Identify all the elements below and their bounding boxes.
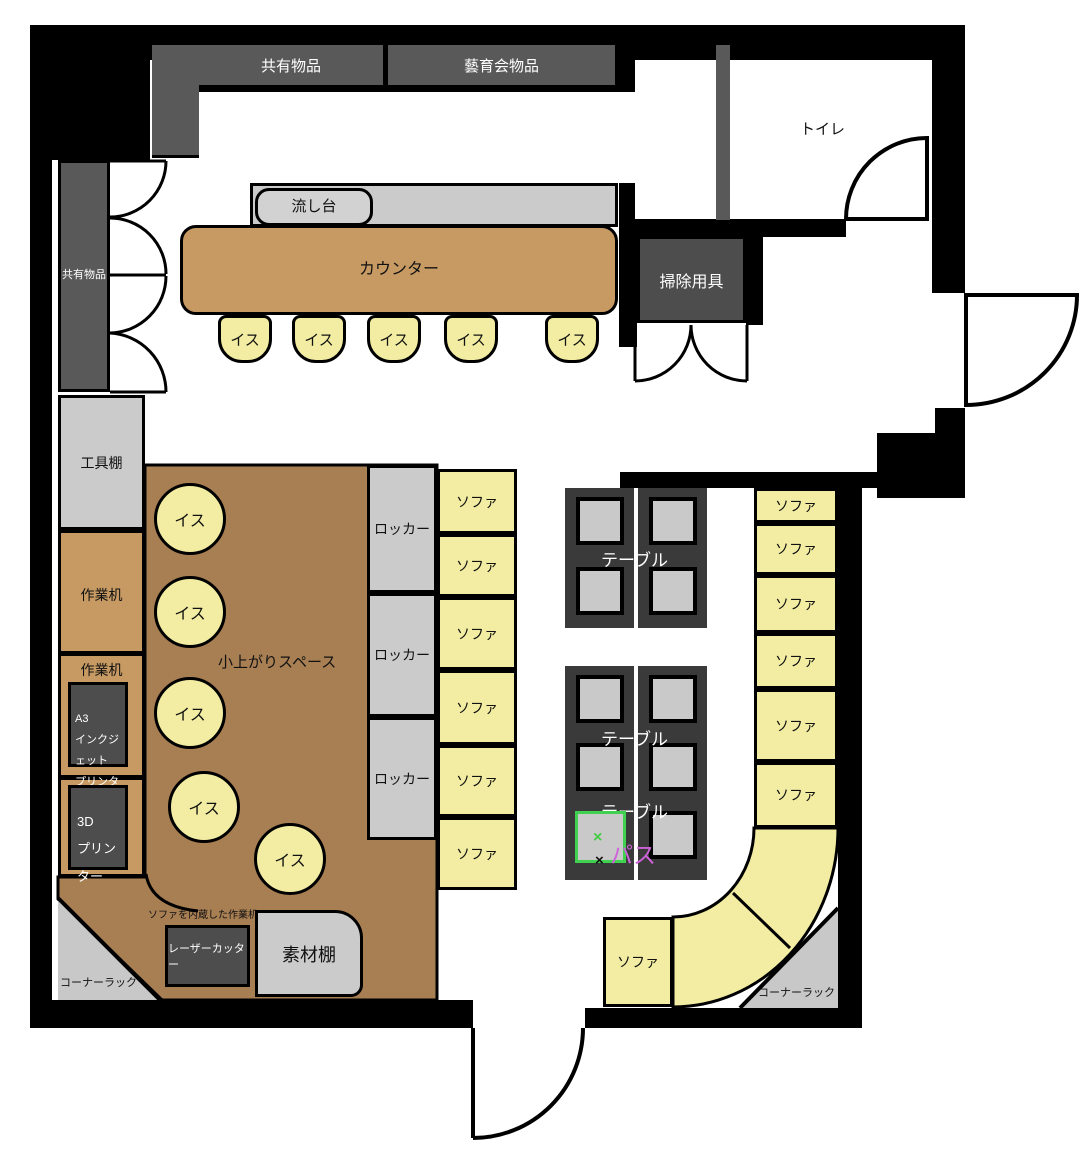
door-leaf	[110, 161, 166, 392]
material-shelf: 素材棚	[255, 910, 363, 997]
printer-3d-line: 3D	[77, 808, 125, 835]
cabinet-shared-items: 共有物品	[58, 160, 110, 392]
locker-label: ロッカー	[374, 645, 430, 665]
sofa: ソファ	[754, 689, 838, 762]
wall-under-shelves	[199, 85, 618, 92]
sofa-label: ソファ	[456, 771, 498, 791]
locker: ロッカー	[367, 717, 437, 840]
sofa: ソファ	[437, 469, 517, 534]
counter-chair: イス	[292, 315, 346, 363]
wall-left	[30, 25, 52, 1028]
wall-right-upper	[932, 25, 965, 293]
a3-printer-line: A3	[75, 709, 125, 730]
cleaning-closet: 掃除用具	[637, 236, 746, 323]
wall-cleaning-left	[620, 237, 637, 347]
door-arc	[635, 325, 691, 381]
shelf-shared-items: 共有物品	[199, 45, 383, 85]
shelf-vertical-section	[152, 45, 199, 155]
sofa: ソファ	[603, 917, 673, 1007]
corner-rack-right-label: コーナーラック	[758, 984, 835, 1000]
chair-label: イス	[557, 329, 587, 350]
toilet-door	[846, 138, 927, 219]
table-seat	[576, 675, 624, 723]
chair-label: イス	[174, 701, 206, 725]
table-seat	[649, 743, 697, 791]
door-arc	[110, 161, 166, 217]
cleaning-closet-label: 掃除用具	[659, 268, 723, 292]
sofa: ソファ	[754, 633, 838, 689]
floor-underlay	[0, 0, 1090, 1152]
locker: ロッカー	[367, 465, 437, 593]
chair-label: イス	[174, 507, 206, 531]
sofa-label: ソファ	[775, 496, 817, 516]
door-arc	[473, 1028, 583, 1138]
sofa-desk-label: ソファを内蔵した作業机	[148, 906, 258, 921]
sofa-label: ソファ	[456, 844, 498, 864]
pass-label: パス	[610, 836, 656, 870]
counter-chair: イス	[545, 315, 599, 363]
sofa: ソファ	[437, 817, 517, 890]
table-seat	[649, 675, 697, 723]
sofa-label: ソファ	[456, 624, 498, 644]
table-seat	[649, 567, 697, 615]
wall-bottom-left	[30, 1000, 473, 1028]
wall-mid-partition	[620, 472, 877, 488]
sofa: ソファ	[754, 762, 838, 828]
floor-chair: イス	[154, 576, 226, 648]
table-seat	[649, 497, 697, 545]
wall-right-step-a	[935, 408, 965, 498]
tool-shelf-label: 工具棚	[81, 453, 123, 473]
sofa: ソファ	[754, 488, 838, 523]
material-shelf-label: 素材棚	[282, 941, 336, 967]
sofa-label: ソファ	[775, 539, 817, 559]
chair-label: イス	[304, 329, 334, 350]
tool-shelf: 工具棚	[58, 395, 145, 530]
sofa-label: ソファ	[617, 952, 659, 972]
printer-3d-line: プリンター	[77, 835, 125, 890]
sofa-band-divider	[733, 893, 790, 948]
floor-chair: イス	[168, 771, 240, 843]
toilet-wall-strip	[716, 45, 730, 220]
sofa: ソファ	[437, 534, 517, 597]
shelf-geiiku-items: 藝育会物品	[388, 45, 615, 85]
counter-chair: イス	[218, 315, 272, 363]
counter-label: カウンター	[183, 228, 615, 312]
wall-bottom-right	[585, 1008, 862, 1028]
pass-mark: ×	[593, 829, 602, 847]
printer-3d: 3D プリンター	[68, 785, 128, 870]
floor-plan: 共有物品 藝育会物品 共有物品 トイレ 流し台 カウンター イス イス イス イ…	[0, 0, 1090, 1152]
door-arc	[691, 325, 747, 381]
table-seat	[576, 567, 624, 615]
sofa-label: ソファ	[775, 651, 817, 671]
floor-chair: イス	[154, 677, 226, 749]
sofa: ソファ	[754, 575, 838, 633]
wall-cleaning-right	[746, 237, 763, 325]
sofa: ソファ	[437, 597, 517, 670]
sofa-label: ソファ	[775, 716, 817, 736]
sofa-corner-label: ソファ	[678, 946, 720, 966]
doors-and-curves-overlay	[0, 0, 1090, 1152]
wall-right-step-b	[877, 433, 935, 498]
counter: カウンター	[180, 225, 618, 315]
locker: ロッカー	[367, 593, 437, 717]
sink: 流し台	[255, 188, 373, 226]
table-seat	[576, 497, 624, 545]
door-arc	[110, 218, 166, 274]
locker-label: ロッカー	[374, 769, 430, 789]
wall-right-lower	[838, 488, 862, 1028]
sofa: ソファ	[437, 670, 517, 745]
door-arc	[110, 333, 166, 392]
counter-chair: イス	[444, 315, 498, 363]
door-leaf	[635, 325, 747, 381]
sofa-label: ソファ	[775, 594, 817, 614]
table-upper-label: テーブル	[601, 546, 668, 571]
floor-chair: イス	[154, 483, 226, 555]
laser-cutter: レーザーカッター	[165, 925, 250, 987]
sofa-label: ソファ	[456, 698, 498, 718]
sofa-label: ソファ	[456, 556, 498, 576]
counter-chair: イス	[367, 315, 421, 363]
sofa-label: ソファ	[775, 785, 817, 805]
chair-label: イス	[456, 329, 486, 350]
cabinet-shared-items-label: 共有物品	[61, 266, 107, 282]
raised-floor-label: 小上がりスペース	[218, 651, 336, 672]
table-seat	[576, 743, 624, 791]
sofa: ソファ	[437, 745, 517, 817]
right-entrance-door	[966, 295, 1077, 405]
work-desk-2-label: 作業机	[61, 660, 142, 680]
sofa-label: ソファ	[456, 492, 498, 512]
pass-mark-2: ×	[595, 852, 604, 869]
chair-label: イス	[379, 329, 409, 350]
sofa-corner-label: ソファ	[752, 862, 794, 882]
corner-rack-left-label: コーナーラック	[60, 974, 137, 990]
chair-label: イス	[174, 600, 206, 624]
a3-printer-line: インクジェット	[75, 730, 125, 772]
chair-label: イス	[188, 795, 220, 819]
chair-label: イス	[230, 329, 260, 350]
work-desk-1: 作業机	[58, 530, 145, 654]
work-desk-1-label: 作業机	[61, 585, 142, 605]
sofa: ソファ	[754, 523, 838, 575]
shelf-geiiku-items-label: 藝育会物品	[464, 55, 539, 76]
laser-cutter-label: レーザーカッター	[168, 940, 247, 972]
sink-label: 流し台	[258, 191, 370, 223]
locker-label: ロッカー	[374, 519, 430, 539]
table-lower-label-a: テーブル	[601, 725, 668, 750]
chair-label: イス	[274, 847, 306, 871]
door-arc	[110, 276, 166, 333]
wall-toilet-bottom	[635, 219, 846, 237]
wall-nook-stub	[615, 42, 635, 92]
a3-inkjet-printer: A3 インクジェット プリンター	[68, 682, 128, 767]
toilet-label: トイレ	[800, 118, 845, 139]
shelf-shared-items-label: 共有物品	[261, 55, 321, 76]
floor-chair: イス	[254, 823, 326, 895]
